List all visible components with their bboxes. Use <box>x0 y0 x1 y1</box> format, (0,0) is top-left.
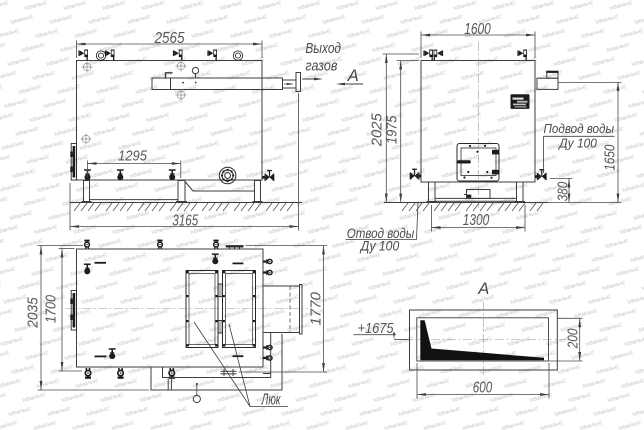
svg-text:2565: 2565 <box>154 30 185 47</box>
svg-text:1300: 1300 <box>463 212 490 229</box>
svg-text:Люк: Люк <box>261 392 281 409</box>
svg-text:1295: 1295 <box>118 148 148 165</box>
svg-text:1700: 1700 <box>43 294 60 323</box>
svg-text:200: 200 <box>566 329 582 350</box>
svg-text:1770: 1770 <box>307 291 324 325</box>
svg-text:1975: 1975 <box>384 115 401 144</box>
svg-text:А: А <box>477 280 489 298</box>
svg-text:600: 600 <box>473 380 493 397</box>
svg-text:2035: 2035 <box>24 297 41 329</box>
svg-text:Ду 100: Ду 100 <box>557 137 596 151</box>
svg-text:Ду 100: Ду 100 <box>359 239 400 254</box>
svg-text:А: А <box>347 67 359 85</box>
svg-text:380: 380 <box>556 182 572 202</box>
svg-text:Выход: Выход <box>305 41 341 57</box>
svg-text:Подвод воды: Подвод воды <box>544 122 615 136</box>
svg-text:газов: газов <box>305 59 337 75</box>
svg-text:3165: 3165 <box>172 213 198 230</box>
svg-text:1650: 1650 <box>602 144 619 171</box>
svg-text:1600: 1600 <box>464 21 491 38</box>
